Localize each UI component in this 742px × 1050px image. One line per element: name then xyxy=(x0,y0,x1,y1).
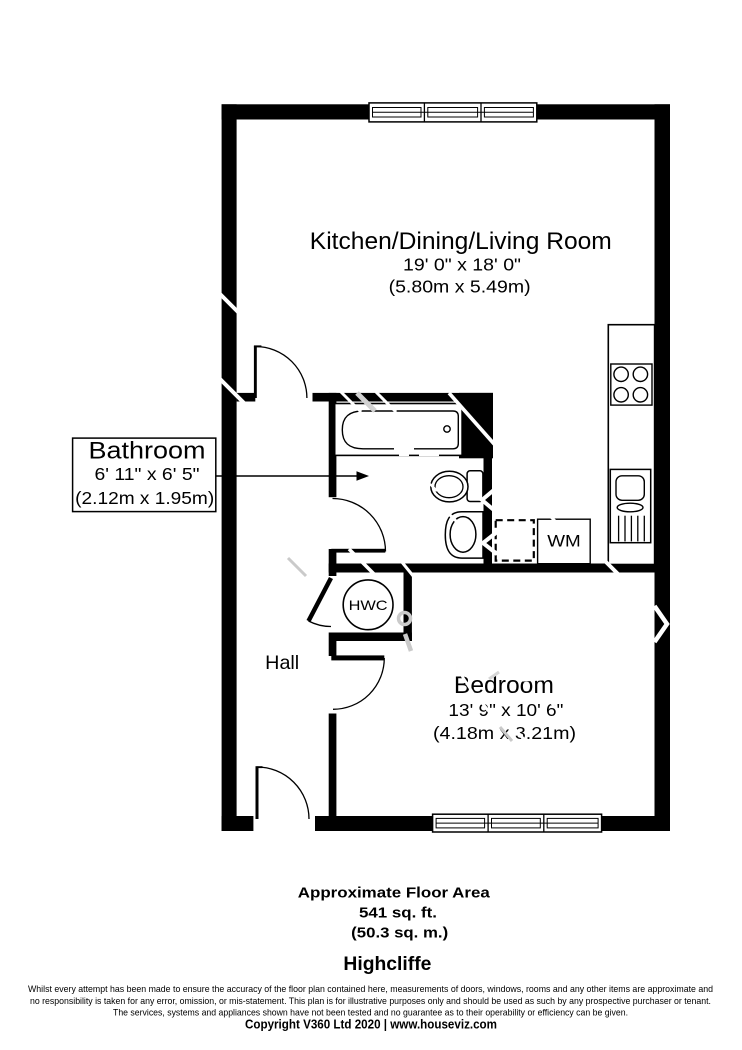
svg-text:13' 9" x 10' 6": 13' 9" x 10' 6" xyxy=(448,700,563,720)
svg-text:Copyright V360 Ltd 2020 | www.: Copyright V360 Ltd 2020 | www.houseviz.c… xyxy=(245,1017,497,1032)
svg-text:6' 11" x 6' 5": 6' 11" x 6' 5" xyxy=(95,464,200,484)
svg-text:19' 0" x 18' 0": 19' 0" x 18' 0" xyxy=(403,255,521,275)
svg-text:541 sq. ft.: 541 sq. ft. xyxy=(359,905,437,922)
svg-text:(50.3 sq. m.): (50.3 sq. m.) xyxy=(351,925,448,942)
svg-text:(2.12m x 1.95m): (2.12m x 1.95m) xyxy=(75,488,214,508)
svg-text:(4.18m x 3.21m): (4.18m x 3.21m) xyxy=(433,723,576,743)
svg-text:Approximate Floor Area: Approximate Floor Area xyxy=(298,884,491,901)
svg-text:WM: WM xyxy=(547,533,581,551)
svg-text:Kitchen/Dining/Living Room: Kitchen/Dining/Living Room xyxy=(310,228,612,255)
svg-text:HWC: HWC xyxy=(349,597,388,613)
svg-text:no responsibility is taken for: no responsibility is taken for any error… xyxy=(30,996,711,1006)
svg-text:Hall: Hall xyxy=(265,652,299,674)
svg-text:Highcliffe: Highcliffe xyxy=(343,954,431,975)
svg-text:Bedroom: Bedroom xyxy=(454,672,554,699)
svg-text:(5.80m x 5.49m): (5.80m x 5.49m) xyxy=(389,277,531,297)
svg-text:Bathroom: Bathroom xyxy=(89,437,206,464)
svg-text:Whilst every attempt has been: Whilst every attempt has been made to en… xyxy=(28,984,713,994)
